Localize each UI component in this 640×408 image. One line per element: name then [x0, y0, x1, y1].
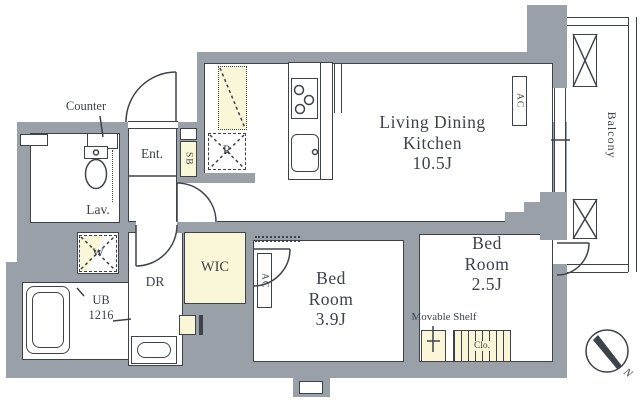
balcony-railing [567, 264, 628, 273]
lavatory-window [20, 134, 48, 146]
doorway-bed25-balcony [553, 240, 567, 264]
doorway-hall-dr [136, 221, 177, 233]
balcony-railing [567, 17, 628, 26]
kitchen-partition [334, 63, 342, 113]
north-label: N [620, 365, 635, 380]
bedroom-25-label: Bed Room 2.5J [425, 233, 549, 295]
wic-label: WIC [184, 259, 246, 276]
closet-label: Clo. [472, 341, 492, 351]
movable-shelf-box [421, 330, 446, 362]
wall-segment [177, 222, 183, 233]
closet: Clo. [453, 330, 511, 362]
room-entrance-hall [128, 128, 177, 222]
wash-basin-bowl [137, 342, 171, 358]
entrance-label: Ent. [130, 146, 174, 162]
dr-label: DR [135, 274, 175, 290]
shoe-box-label: SB [184, 152, 194, 166]
movable-shelf-label: Movable Shelf [388, 311, 500, 324]
hanger-pipe-dots [255, 236, 300, 242]
refrigerator-label: R [208, 143, 246, 158]
structural-column [573, 34, 597, 87]
bathtub-inner [32, 292, 64, 348]
wall-segment [527, 5, 567, 63]
shoe-box-upper-cabinet [180, 128, 197, 140]
wall-segment [197, 52, 527, 63]
toilet-divider-line [112, 150, 113, 202]
ac-label: AC [515, 93, 525, 108]
stove [291, 78, 318, 119]
kitchen-cupboard [218, 66, 247, 130]
kitchen-sink [291, 134, 319, 172]
balcony-railing [628, 17, 637, 272]
kitchen-counter-edge [320, 62, 321, 180]
wall-segment [553, 63, 567, 88]
entrance-threshold [128, 121, 178, 129]
ub-label: UB 1216 [72, 293, 130, 323]
duct-bar [199, 315, 203, 335]
counter-label: Counter [50, 99, 122, 114]
washer-label: W [79, 245, 117, 259]
entry-door-icon [126, 72, 176, 122]
doorway-hall-ldk [177, 183, 217, 222]
toilet-tank [84, 146, 108, 159]
lavatory-label: Lav. [76, 202, 120, 218]
wall-segment [197, 63, 204, 123]
floor-plan: SB AC AC Clo. Counter Ent. Lav. R W DR W… [0, 0, 640, 408]
balcony-label: Balcony [605, 100, 619, 170]
bedroom-39-label: Bed Room 3.9J [258, 268, 404, 330]
ldk-label: Living Dining Kitchen 10.5J [330, 112, 535, 174]
structural-column [573, 199, 597, 239]
shelf-post-box [179, 315, 196, 335]
shoe-box: SB [180, 141, 197, 177]
pipe-space-inner [299, 381, 323, 394]
ldk-balcony-window [554, 88, 566, 192]
compass-icon [586, 330, 628, 372]
wall-segment [197, 127, 204, 173]
